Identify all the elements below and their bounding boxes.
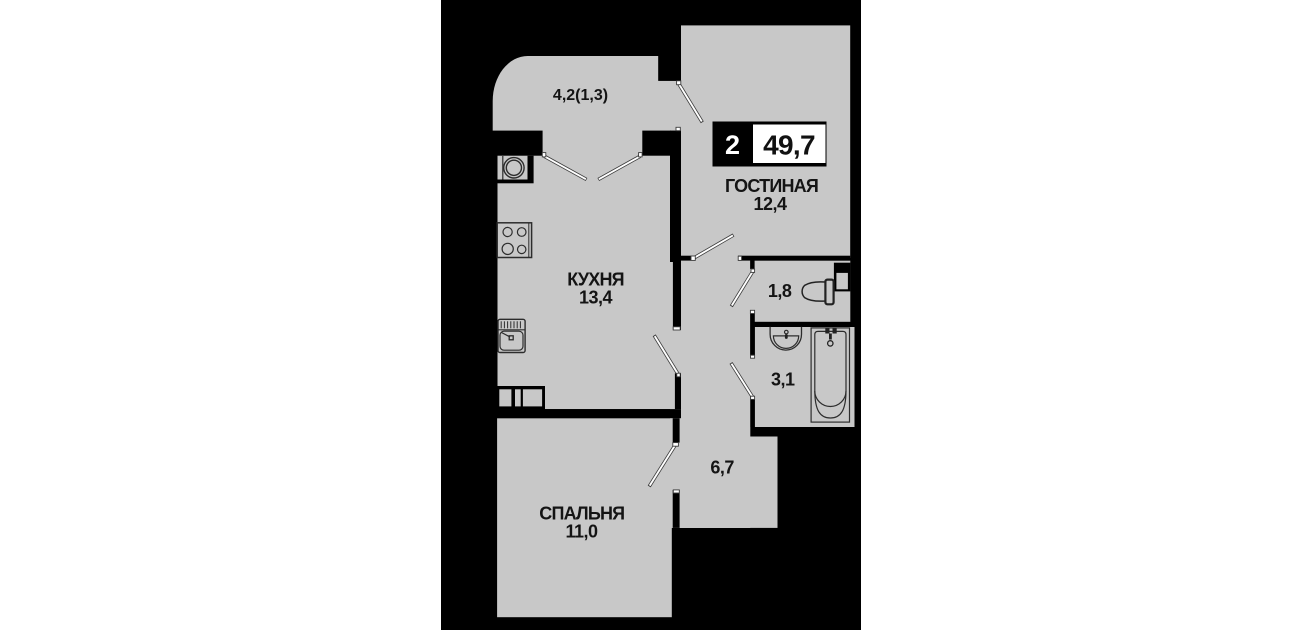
svg-text:3,1: 3,1 — [771, 370, 795, 390]
svg-text:13,4: 13,4 — [579, 287, 613, 307]
svg-text:1,8: 1,8 — [768, 281, 792, 301]
svg-text:49,7: 49,7 — [763, 129, 815, 160]
svg-text:11,0: 11,0 — [565, 521, 598, 541]
svg-text:12,4: 12,4 — [753, 194, 787, 214]
svg-text:6,7: 6,7 — [710, 457, 734, 477]
svg-text:4,2(1,3): 4,2(1,3) — [553, 87, 608, 104]
svg-text:2: 2 — [725, 130, 740, 160]
